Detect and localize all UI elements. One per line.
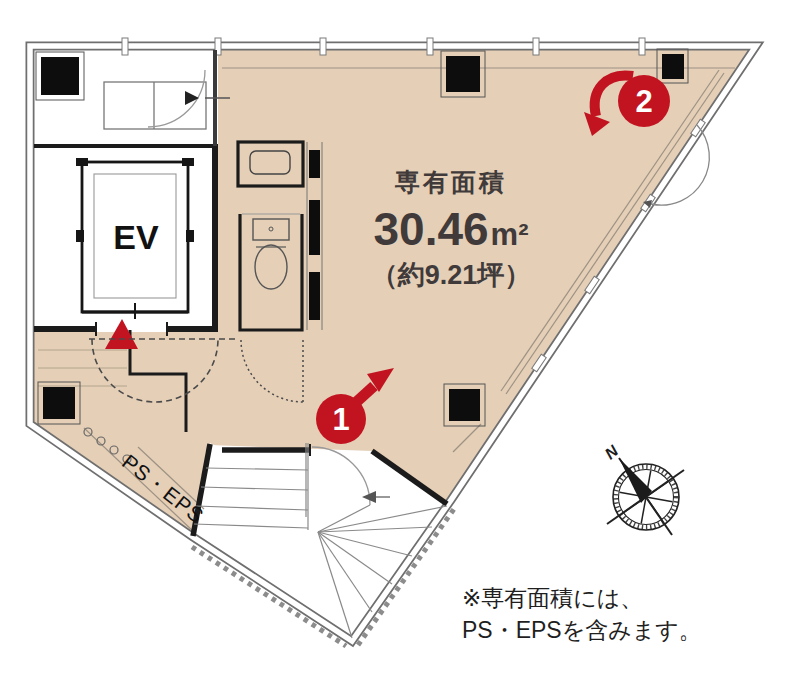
area-unit: m² (491, 217, 529, 252)
pillar (662, 54, 684, 79)
marker-2-label: 2 (635, 84, 652, 119)
pillar (446, 56, 480, 92)
pillar (449, 389, 480, 421)
floor-plan-page: EV (0, 0, 800, 692)
footnote-line-2: PS・EPSを含みます。 (462, 617, 702, 643)
area-caption: 専有面積 (394, 168, 507, 196)
floor-plan: EV (0, 0, 800, 692)
pillar (43, 387, 75, 419)
area-tsubo: （約9.21坪） (371, 260, 532, 290)
marker-1-label: 1 (332, 402, 349, 437)
footnote-line-1: ※専有面積には、 (462, 585, 643, 611)
area-value: 30.46 (373, 203, 488, 255)
pillar (41, 57, 79, 95)
elevator-label: EV (113, 218, 159, 256)
